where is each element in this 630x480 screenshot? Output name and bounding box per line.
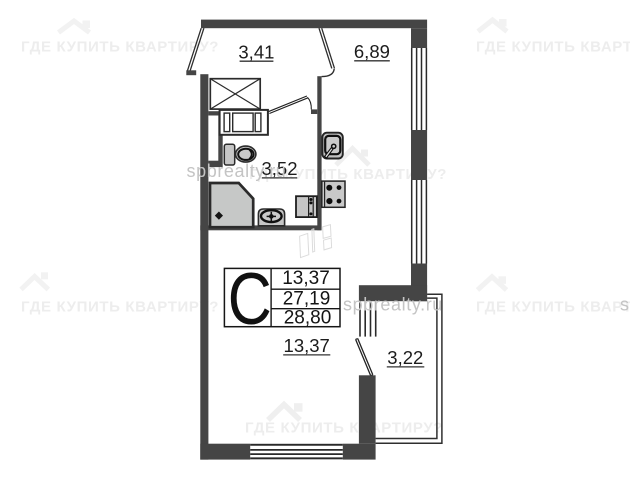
svg-text:13,37: 13,37: [284, 335, 330, 356]
svg-text:3,22: 3,22: [387, 347, 423, 368]
svg-text:ГДЕ КУПИТЬ КВАРТИРУ?: ГДЕ КУПИТЬ КВАРТИРУ?: [21, 39, 219, 56]
svg-text:С: С: [228, 259, 272, 340]
svg-text:ГДЕ КУПИТЬ КВАРТИРУ?: ГДЕ КУПИТЬ КВАРТИРУ?: [476, 39, 630, 56]
svg-text:28,80: 28,80: [284, 308, 332, 329]
svg-text:ГДЕ КУПИТЬ КВАРТИРУ?: ГДЕ КУПИТЬ КВАРТИРУ?: [476, 299, 630, 316]
svg-text:sp: sp: [620, 295, 630, 315]
svg-text:27,19: 27,19: [283, 288, 331, 309]
svg-text:ГДЕ КУПИТЬ КВАРТИРУ?: ГДЕ КУПИТЬ КВАРТИРУ?: [245, 420, 443, 437]
svg-text:3,41: 3,41: [238, 42, 274, 63]
svg-text:6,89: 6,89: [354, 41, 390, 62]
svg-text:spbrealty.ru: spbrealty.ru: [187, 161, 287, 181]
svg-text:ГДЕ КУПИТЬ КВАРТИРУ?: ГДЕ КУПИТЬ КВАРТИРУ?: [21, 299, 219, 316]
svg-text:13,37: 13,37: [282, 268, 330, 289]
svg-text:spbrealty.ru: spbrealty.ru: [343, 295, 443, 315]
